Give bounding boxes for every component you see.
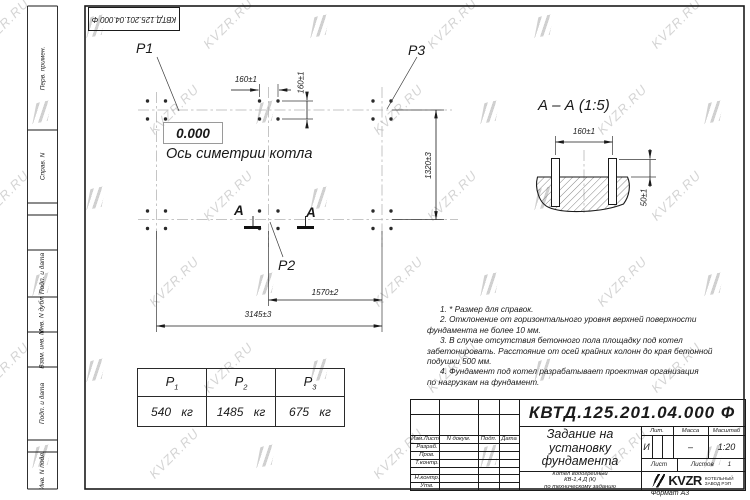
- mass-label: Масса: [673, 426, 708, 435]
- sheets-label: Листов: [691, 461, 714, 468]
- plan-centerlines: [138, 87, 584, 247]
- strip-label-inv-dubl: Инв. N дубл.: [27, 297, 58, 332]
- note-line: 3. В случае отсутствия бетонного пола пл…: [427, 336, 729, 346]
- note-line: фундамента не более 10 мм.: [427, 326, 729, 336]
- lit-label: Лит.: [641, 426, 673, 435]
- load-value-p1: 540 кг: [138, 397, 207, 427]
- anchor-bolt: [552, 159, 560, 207]
- col-n-dokum: N докум.: [439, 435, 478, 443]
- load-table: P1 P2 P3 540 кг 1485 кг 675 кг: [137, 368, 345, 427]
- note-line: 1. * Размер для справок.: [427, 305, 729, 315]
- col-izm-list: Изм.Лист: [411, 435, 439, 443]
- note-line: забетонировать. Расстояние от осей крайн…: [427, 347, 729, 357]
- load-value-p3: 675 кг: [276, 397, 345, 427]
- drawing-sheet: KVZR.RUKVZR.RUKVZR.RUKVZR.RUKVZR.RUKVZR.…: [0, 0, 750, 500]
- product-line: по техническому заданию: [544, 484, 616, 490]
- sheets-cell: Листов 1: [677, 458, 745, 471]
- load-point-p2-label: P2: [278, 257, 295, 273]
- strip-label-vzam-inv: Взам. инв. N: [27, 332, 58, 367]
- scale-value: 1:20: [708, 435, 745, 458]
- strip-label-podp-data-2: Подп. и дата: [27, 367, 58, 440]
- lit-value: И: [641, 435, 652, 458]
- note-line: 4. Фундамент под котел разрабатывает про…: [427, 367, 729, 377]
- load-table-header-p1: P1: [138, 369, 207, 397]
- title-block: Изм.Лист N докум. Подп. Дата Разраб. Про…: [410, 399, 746, 491]
- dim-foundation-width: 1320±3: [419, 143, 437, 187]
- strip-label-perv-primen: Перв. примен.: [27, 6, 58, 130]
- note-line: 2. Отклонение от горизонтального уровня …: [427, 315, 729, 325]
- sign-row-razrab: Разраб.: [411, 443, 441, 451]
- section-letter-left: А: [234, 203, 244, 218]
- strip-label-podp-data-1: Подп. и дата: [27, 250, 58, 297]
- company-caption: КОТЕЛЬНЫЙ ЗАВОД РЭП: [705, 476, 734, 486]
- dim-bolt-spacing-v: 160±1: [292, 62, 310, 102]
- load-table-header-p2: P2: [207, 369, 276, 397]
- document-title-line: фундамента: [542, 455, 619, 469]
- note-line: подушки 500 мм.: [427, 357, 729, 367]
- product-description: Котел водогрейный КВ-1,4 Д (К) по технич…: [519, 471, 641, 490]
- col-podp: Подп.: [478, 435, 499, 443]
- sign-row-utv: Утв.: [411, 482, 441, 490]
- dim-foundation-length: 3145±3: [233, 310, 283, 319]
- elevation-mark: 0.000: [163, 122, 223, 144]
- load-value-p2: 1485 кг: [207, 397, 276, 427]
- sign-row-nkontr: Н.контр.: [411, 474, 441, 482]
- company-caption-line: ЗАВОД РЭП: [705, 481, 734, 486]
- document-title-line: Задание на: [547, 428, 614, 442]
- load-table-header-p3: P3: [276, 369, 345, 397]
- dim-section-bolt-spacing: 160±1: [559, 127, 609, 136]
- format-label: Формат А3: [595, 490, 745, 497]
- document-number: КВТД.125.201.04.000 Ф: [519, 400, 745, 426]
- strip-label-sprav-n: Справ. N: [27, 130, 58, 203]
- company-name: KVZR: [668, 473, 701, 488]
- elevation-value: 0.000: [176, 126, 210, 141]
- top-document-stamp: КВТД.125.201.04.000 Ф: [88, 7, 180, 31]
- sheets-value: 1: [728, 461, 732, 468]
- document-title: Задание на установку фундамента: [519, 426, 641, 471]
- dim-column-pitch: 1570±2: [300, 288, 350, 297]
- section-view-geometry: [537, 159, 630, 212]
- company-logo: KVZR КОТЕЛЬНЫЙ ЗАВОД РЭП: [641, 471, 745, 490]
- col-data: Дата: [499, 435, 519, 443]
- section-view-title: А – А (1:5): [538, 97, 610, 114]
- strip-label-inv-podl: Инв. N подл.: [27, 452, 58, 489]
- sign-row-prov: Пров.: [411, 451, 441, 459]
- top-document-code: КВТД.125.201.04.000 Ф: [92, 15, 176, 24]
- sign-row-empty: [411, 467, 441, 475]
- load-point-p1-label: P1: [136, 40, 153, 56]
- load-point-p3-label: P3: [408, 42, 425, 58]
- section-cut-marks: [244, 216, 314, 228]
- anchor-bolt: [609, 159, 617, 205]
- dim-bolt-spacing-h: 160±1: [217, 75, 257, 84]
- mass-value: –: [673, 435, 708, 458]
- note-line: по нагрузкам на фундамент.: [427, 378, 729, 388]
- section-letter-right: А: [306, 205, 316, 220]
- dim-bolt-protrusion: 50±1: [636, 180, 652, 214]
- boiler-symmetry-axis-label: Ось симетрии котла: [166, 146, 312, 162]
- document-title-line: установку: [549, 442, 611, 456]
- kvzr-logo-icon: [652, 474, 665, 488]
- notes: 1. * Размер для справок. 2. Отклонение о…: [427, 305, 729, 388]
- sign-row-tkontr: Т.контр.: [411, 459, 441, 467]
- sheet-label: Лист: [641, 458, 677, 471]
- anchor-bolt-dots: [146, 99, 393, 230]
- scale-label: Масштаб: [708, 426, 745, 435]
